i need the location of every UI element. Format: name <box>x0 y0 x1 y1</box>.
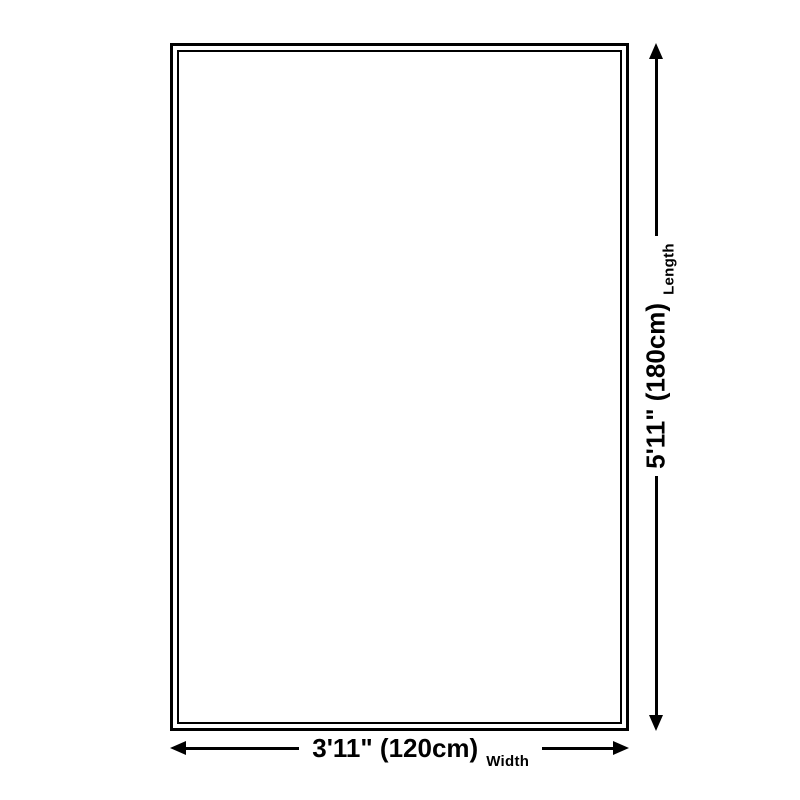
arrow-left-icon <box>170 741 186 755</box>
size-diagram: 5'11" (180cm)Length 3'11" (120cm)Width <box>0 0 800 800</box>
width-dimension-arrow: 3'11" (120cm)Width <box>170 739 629 757</box>
product-outline-outer <box>170 43 629 731</box>
width-value: 3'11" (120cm) <box>312 733 478 763</box>
product-outline-inner <box>177 50 622 724</box>
length-arrow-line-bottom <box>655 476 658 715</box>
width-label: 3'11" (120cm)Width <box>312 733 529 764</box>
width-arrow-line-right <box>542 747 613 750</box>
length-caption: Length <box>661 243 678 295</box>
arrow-right-icon <box>613 741 629 755</box>
length-label: 5'11" (180cm)Length <box>647 236 665 476</box>
width-caption: Width <box>486 753 529 770</box>
length-arrow-line-top <box>655 59 658 236</box>
length-value: 5'11" (180cm) <box>641 303 671 469</box>
width-arrow-line-left <box>186 747 299 750</box>
arrow-down-icon <box>649 715 663 731</box>
length-dimension-arrow: 5'11" (180cm)Length <box>647 43 665 731</box>
arrow-up-icon <box>649 43 663 59</box>
